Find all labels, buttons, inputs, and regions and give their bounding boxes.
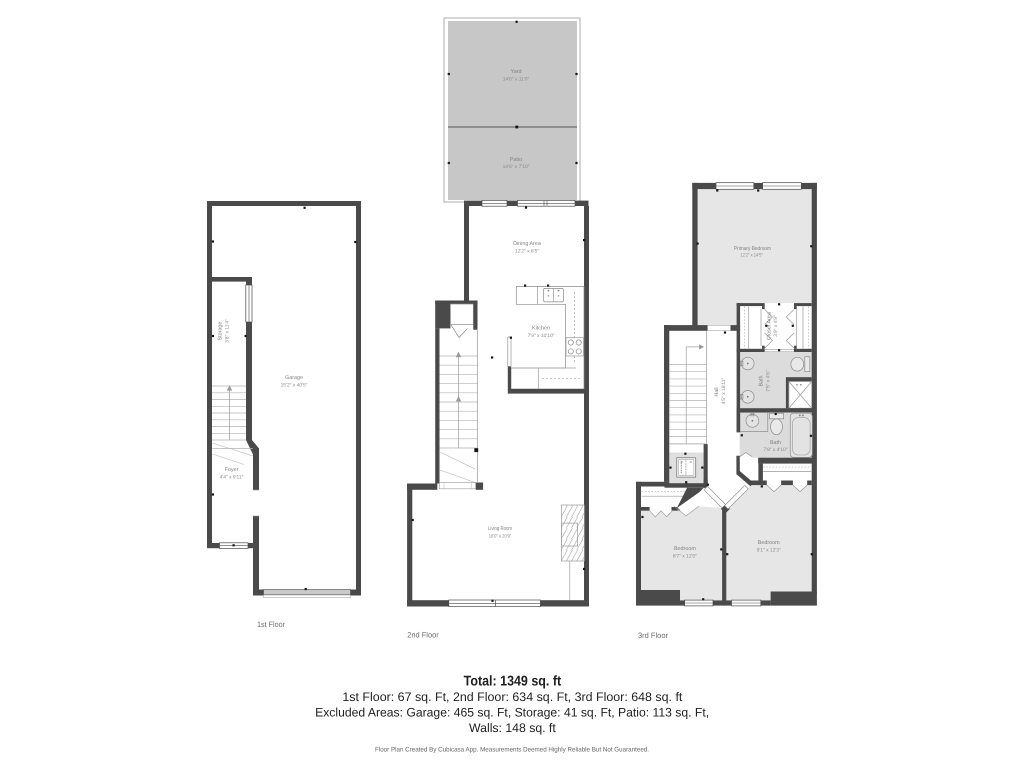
svg-text:Foyer: Foyer — [225, 467, 239, 473]
svg-text:Bath: Bath — [770, 440, 781, 446]
svg-text:4'5" x 18'11": 4'5" x 18'11" — [721, 378, 727, 405]
svg-text:1st Floor: 1st Floor — [257, 620, 285, 629]
svg-text:3'9" x 4'9": 3'9" x 4'9" — [773, 315, 779, 337]
svg-text:Hall: Hall — [714, 387, 720, 396]
svg-text:4'4" x 9'11": 4'4" x 9'11" — [220, 475, 244, 481]
svg-text:12'2" x 14'5": 12'2" x 14'5" — [740, 253, 763, 259]
svg-text:Floor Plan Created By Cubicasa: Floor Plan Created By Cubicasa App. Meas… — [375, 747, 649, 754]
svg-text:Storage: Storage — [218, 322, 224, 341]
svg-text:7'5" x 4'6": 7'5" x 4'6" — [766, 370, 772, 392]
svg-text:9'1" x 12'3": 9'1" x 12'3" — [757, 547, 781, 553]
svg-text:Garage: Garage — [285, 375, 303, 381]
svg-text:16'0" x 20'9": 16'0" x 20'9" — [489, 534, 512, 540]
svg-text:Yard: Yard — [511, 69, 522, 75]
svg-text:15'2" x 40'5": 15'2" x 40'5" — [281, 383, 308, 389]
svg-text:12'2" x 8'5": 12'2" x 8'5" — [515, 249, 539, 255]
svg-text:Excluded Areas: Garage: 465 sq: Excluded Areas: Garage: 465 sq. Ft, Stor… — [315, 706, 709, 720]
svg-text:7'9" x 10'10": 7'9" x 10'10" — [528, 333, 555, 339]
svg-text:Bedroom: Bedroom — [758, 540, 780, 546]
svg-text:Primary Bedroom: Primary Bedroom — [734, 246, 771, 252]
svg-text:8'7" x 12'0": 8'7" x 12'0" — [673, 553, 697, 559]
svg-text:7'8" x 4'10": 7'8" x 4'10" — [763, 447, 787, 453]
svg-text:Walls: 148 sq. ft: Walls: 148 sq. ft — [469, 721, 556, 735]
svg-text:14'6" x 11'0": 14'6" x 11'0" — [503, 77, 530, 83]
svg-text:3rd Floor: 3rd Floor — [638, 631, 668, 640]
svg-text:14'6" x 7'10": 14'6" x 7'10" — [503, 164, 530, 170]
svg-text:Living Room: Living Room — [488, 526, 512, 532]
svg-text:Total: 1349 sq. ft: Total: 1349 sq. ft — [464, 673, 562, 689]
svg-text:Kitchen: Kitchen — [532, 326, 550, 332]
svg-text:Patio: Patio — [510, 157, 522, 163]
svg-text:Bath: Bath — [759, 375, 765, 386]
svg-text:Dining Area: Dining Area — [513, 241, 541, 247]
svg-text:2nd Floor: 2nd Floor — [407, 631, 439, 640]
svg-text:Bedroom: Bedroom — [674, 546, 696, 552]
svg-text:3'8" x 11'4": 3'8" x 11'4" — [225, 319, 231, 343]
svg-text:1st Floor: 67 sq. Ft, 2nd Floo: 1st Floor: 67 sq. Ft, 2nd Floor: 634 sq.… — [342, 690, 683, 704]
